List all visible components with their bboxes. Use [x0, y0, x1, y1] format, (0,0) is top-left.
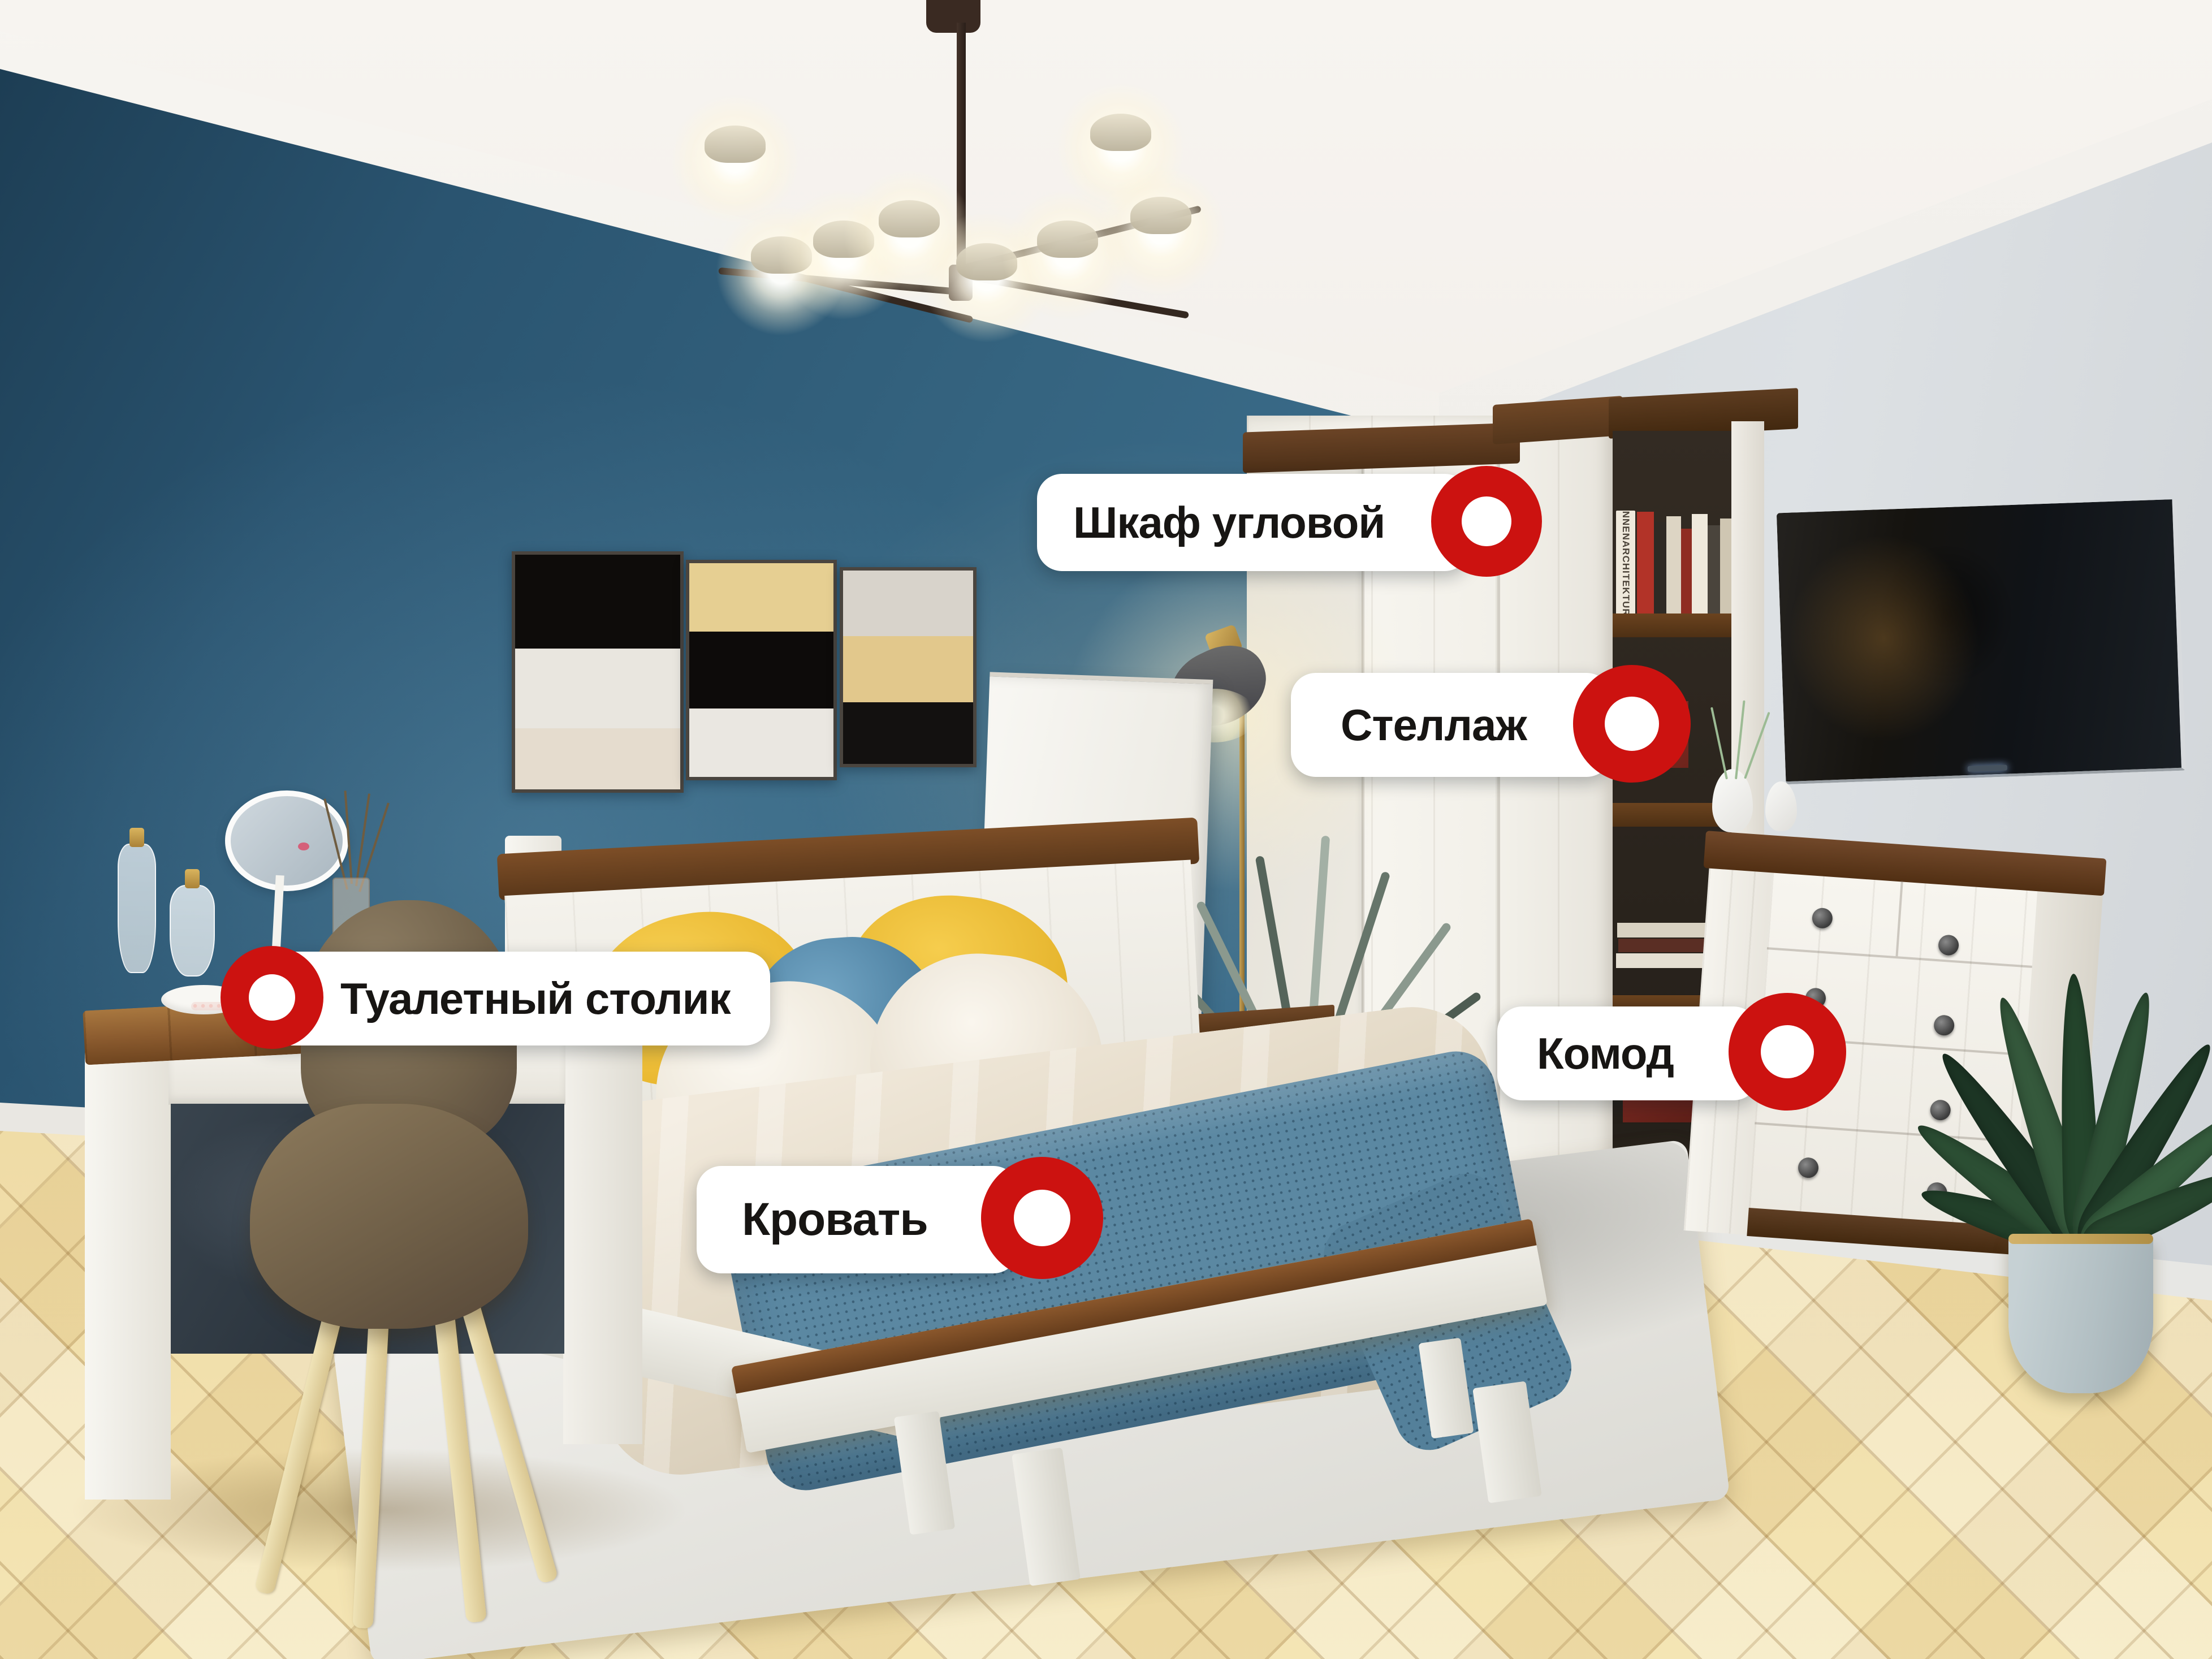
hotspot-dressing-table-marker-icon[interactable] [221, 946, 323, 1049]
hotspot-dressing-table-label: Туалетный столик [340, 973, 731, 1025]
bedroom-scene: INNENARCHITEKTUR [0, 0, 2212, 1659]
hotspot-bed-marker-icon[interactable] [981, 1157, 1103, 1279]
wall-tv [1777, 499, 2186, 784]
pot-gold-rim [2008, 1234, 2153, 1244]
hotspot-corner-wardrobe[interactable]: Шкаф угловой [1037, 474, 1470, 571]
desk-leg-right [563, 1025, 642, 1444]
art-band-black [515, 555, 680, 649]
perfume-cap [129, 828, 144, 847]
chandelier-hub [949, 265, 973, 301]
hotspot-corner-wardrobe-marker-icon[interactable] [1431, 466, 1542, 577]
book-row: INNENARCHITEKTUR [1616, 509, 1734, 614]
book-spine [1708, 525, 1720, 614]
art-band-black [689, 632, 833, 708]
hotspot-chest-of-drawers[interactable]: Комод [1497, 1006, 1759, 1100]
book-spine-titled: INNENARCHITEKTUR [1616, 511, 1635, 614]
book-spine [1692, 514, 1708, 614]
vanity-mirror [225, 790, 348, 891]
tv-logo [1968, 765, 2007, 772]
wall-art-panel-1 [512, 551, 684, 793]
lipstick-kiss-icon [298, 843, 309, 850]
chandelier-stem [957, 23, 966, 277]
art-band-yellow [689, 563, 833, 632]
plant-pot [2008, 1234, 2153, 1393]
art-band-yellow [843, 636, 973, 702]
art-band-beige [515, 728, 680, 789]
hotspot-chest-of-drawers-label: Комод [1537, 1028, 1674, 1079]
wall-art-panel-3 [840, 567, 977, 767]
book-spine [1654, 522, 1666, 614]
hotspot-corner-wardrobe-label: Шкаф угловой [1073, 497, 1385, 548]
hotspot-shelving-unit-label: Стеллаж [1341, 699, 1527, 751]
book-spine [1637, 512, 1654, 614]
art-band-black [843, 702, 973, 764]
perfume-bottle [118, 844, 156, 973]
wall-art-panel-2 [686, 560, 837, 780]
hotspot-shelving-unit[interactable]: Стеллаж [1291, 673, 1612, 777]
chandelier-mount [926, 0, 980, 33]
desk-leg-left [85, 1047, 171, 1500]
perfume-bottle [170, 885, 215, 977]
art-band-white [515, 649, 680, 728]
book-spine [1666, 516, 1681, 614]
hotspot-shelving-unit-marker-icon[interactable] [1573, 665, 1691, 783]
chair-seat [250, 1104, 528, 1329]
potted-plant [1962, 961, 2212, 1278]
hotspot-chest-of-drawers-marker-icon[interactable] [1729, 993, 1846, 1111]
hotspot-dressing-table[interactable]: Туалетный столик [250, 952, 770, 1045]
hotspot-bed[interactable]: Кровать [697, 1166, 1018, 1273]
book-spine [1681, 529, 1692, 614]
art-band-white [689, 708, 833, 777]
art-band-gray [843, 571, 973, 636]
shelf-board [1613, 614, 1736, 637]
perfume-cap [185, 869, 200, 888]
hotspot-bed-label: Кровать [742, 1193, 928, 1246]
